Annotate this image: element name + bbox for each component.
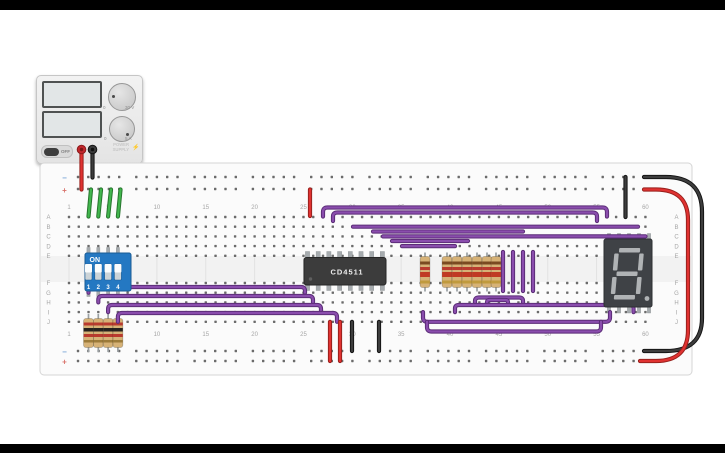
svg-text:−: − [62,348,67,357]
segment-resistor[interactable] [452,253,462,292]
svg-text:20: 20 [251,332,258,338]
svg-text:15: 15 [202,332,209,338]
svg-text:+: + [62,358,67,367]
svg-text:35: 35 [398,332,405,338]
segment-resistor[interactable] [482,253,492,292]
segment-a [619,248,640,253]
svg-text:20: 20 [251,205,258,211]
psu-terminals[interactable] [77,145,97,154]
svg-text:H: H [674,301,678,307]
svg-text:15: 15 [202,205,209,211]
svg-text:A: A [46,215,50,221]
input-pulldown-resistor[interactable] [84,314,94,352]
svg-text:D: D [46,244,51,250]
segment-resistor[interactable] [472,253,482,292]
ic-cd4511[interactable]: CD4511 [304,258,386,286]
svg-text:E: E [674,254,678,260]
segment-resistor[interactable] [442,253,452,292]
svg-text:J: J [675,320,678,326]
dip-on-label: ON [90,257,101,264]
dip-slider-3[interactable] [105,264,112,280]
ic-pin1-dot [309,277,312,280]
psu-negative-terminal[interactable] [88,145,97,154]
svg-text:−: − [62,174,67,183]
svg-text:F: F [675,281,679,287]
dip-slider-1[interactable] [85,264,92,280]
wire-rail-jumper-green-2[interactable] [98,190,101,217]
tinkercad-workspace: 0 30 V 0 5 A OFF POWER SUPPLY ⚡ 11551010… [0,0,725,453]
svg-text:C: C [46,235,51,241]
svg-text:H: H [46,301,50,307]
svg-text:C: C [674,235,679,241]
segment-resistor[interactable] [491,253,501,292]
svg-text:E: E [46,254,50,260]
svg-text:25: 25 [300,205,307,211]
svg-text:10: 10 [154,205,161,211]
svg-text:D: D [674,244,679,250]
svg-text:B: B [674,225,678,231]
segment-d [614,295,635,300]
svg-text:10: 10 [154,332,161,338]
svg-text:60: 60 [642,205,649,211]
input-pulldown-resistor[interactable] [93,314,103,352]
svg-text:A: A [674,215,678,221]
wire-rail-jumper-green-4[interactable] [118,190,121,217]
svg-text:J: J [47,320,50,326]
wire-rail-jumper-green-3[interactable] [108,190,111,217]
ic-label: CD4511 [330,268,363,277]
dip-switch[interactable]: ON 1234 [85,253,131,291]
svg-text:+: + [62,186,67,195]
svg-text:F: F [47,281,51,287]
dip-slider-4[interactable] [114,264,121,280]
psu-positive-terminal[interactable] [77,145,86,154]
svg-text:B: B [46,225,50,231]
input-pulldown-resistor[interactable] [103,314,113,352]
svg-text:60: 60 [642,332,649,338]
svg-text:G: G [674,291,679,297]
svg-text:G: G [46,291,51,297]
segment-dp [645,296,650,301]
svg-text:25: 25 [300,332,307,338]
seven-segment-display[interactable] [604,239,652,307]
segment-g [616,272,637,277]
segment-resistor[interactable] [420,253,430,292]
wire-rail-jumper-green-1[interactable] [89,190,92,217]
dip-slider-2[interactable] [95,264,102,280]
segment-resistor[interactable] [462,253,472,292]
